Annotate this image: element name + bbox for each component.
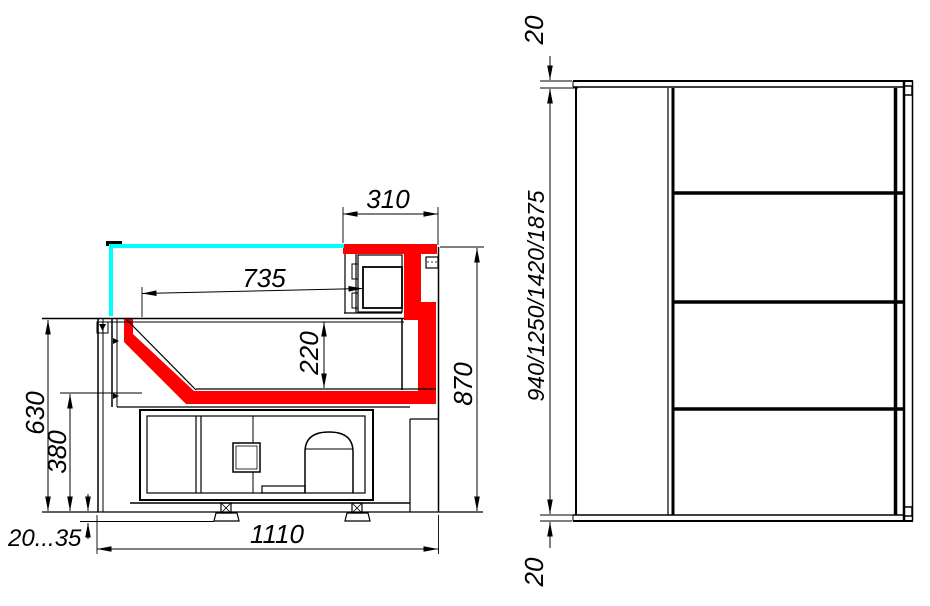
dim-overall-depth: 1110 xyxy=(250,519,305,549)
plan-view-dimensions: 20 940/1250/1420/1875 20 xyxy=(519,15,578,587)
tray-box xyxy=(262,486,305,493)
dim-top-overhang: 20 xyxy=(519,15,549,45)
dim-overall-height: 870 xyxy=(448,362,478,406)
dim-canopy-depth: 310 xyxy=(366,184,410,214)
compressor xyxy=(305,432,353,493)
plan-view: 20 940/1250/1420/1875 20 xyxy=(519,15,913,587)
machine-compartment xyxy=(140,410,373,500)
dim-bottom-overhang: 20 xyxy=(519,557,549,587)
technical-drawing: 310 735 220 870 630 380 20...35 xyxy=(0,0,930,606)
dim-worktop-height: 630 xyxy=(20,391,50,435)
dim-base-height: 380 xyxy=(42,430,72,474)
plan-body-outline xyxy=(573,81,913,521)
side-view: 310 735 220 870 630 380 20...35 xyxy=(7,184,484,554)
dim-length-options: 940/1250/1420/1875 xyxy=(523,190,549,401)
dim-display-depth: 735 xyxy=(242,263,286,293)
side-view-dimensions: 310 735 220 870 630 380 20...35 xyxy=(7,184,484,554)
weld-mark-upper xyxy=(113,338,119,344)
dim-well-depth: 220 xyxy=(294,331,324,376)
dim-leg-adjust-range: 20...35 xyxy=(7,525,82,552)
weld-mark-lower xyxy=(113,393,119,399)
relay-box xyxy=(233,443,260,472)
blueprint-canvas: 310 735 220 870 630 380 20...35 xyxy=(0,0,930,606)
detail-marker xyxy=(97,322,119,399)
